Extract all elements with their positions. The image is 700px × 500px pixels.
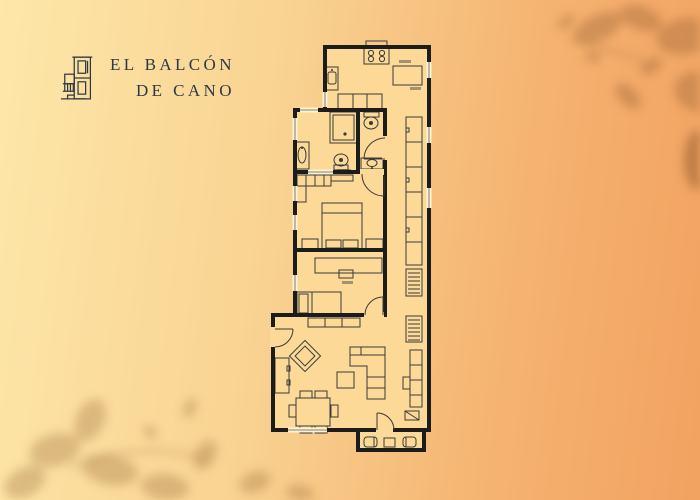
window-icon <box>293 118 298 140</box>
window-icon <box>323 92 328 107</box>
floorplan <box>0 0 700 500</box>
window-icon <box>427 127 432 143</box>
page: EL BALCÓN DE CANO <box>0 0 700 500</box>
dimension-label <box>342 281 353 284</box>
window-icon <box>300 108 318 113</box>
window-icon <box>288 428 327 433</box>
sliding-door-icon <box>308 170 333 175</box>
window-icon <box>293 186 298 201</box>
window-icon <box>427 62 432 78</box>
window-icon <box>427 188 432 208</box>
window-icon <box>293 275 298 291</box>
window-icon <box>293 215 298 230</box>
